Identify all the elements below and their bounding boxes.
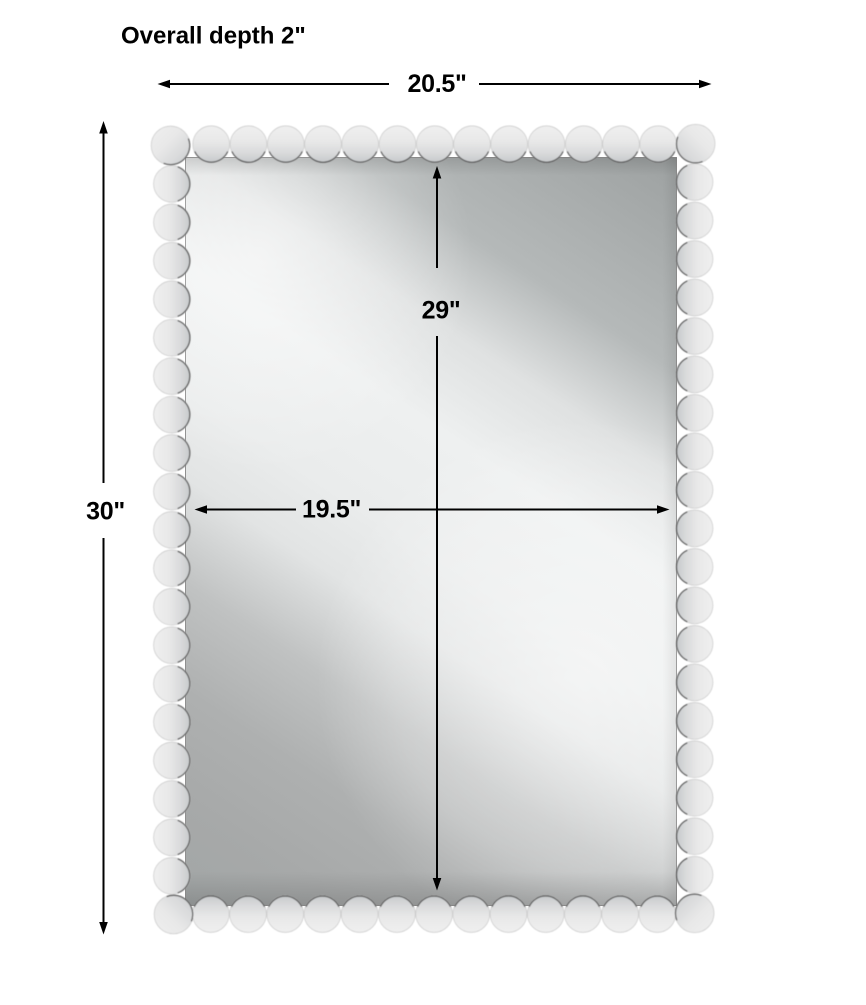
- svg-text:29": 29": [422, 297, 461, 325]
- svg-text:Overall depth 2": Overall depth 2": [121, 23, 306, 50]
- svg-text:30": 30": [86, 498, 125, 526]
- svg-text:20.5": 20.5": [407, 70, 466, 98]
- svg-text:19.5": 19.5": [302, 496, 361, 524]
